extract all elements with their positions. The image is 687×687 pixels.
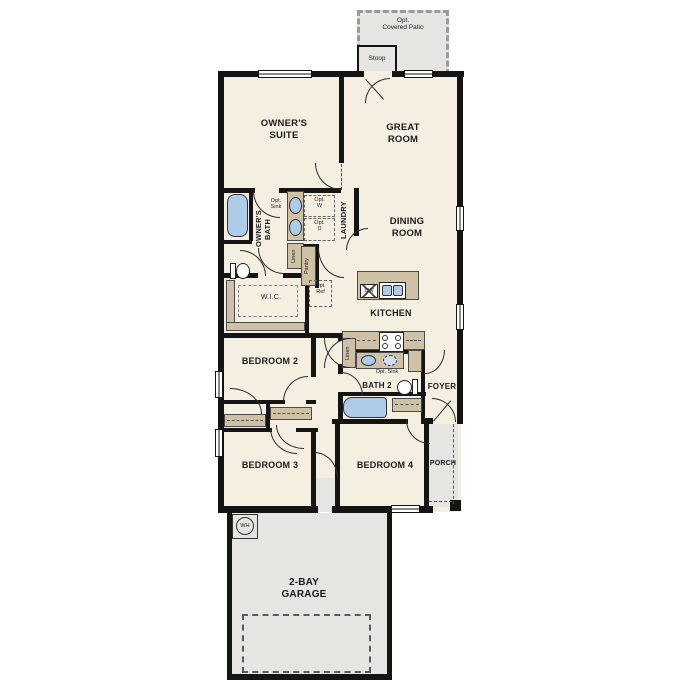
garage-label: 2-BAY GARAGE	[258, 577, 350, 601]
counter-side	[408, 350, 422, 372]
window	[391, 505, 420, 513]
island-sink-bowl-2	[393, 285, 403, 296]
wall	[227, 674, 392, 680]
sink-owners-1	[289, 197, 302, 214]
sink-owners-2	[289, 219, 302, 236]
window	[456, 206, 464, 231]
opt-dryer-label: Opt. D	[305, 220, 334, 233]
porch-edge-dash	[429, 501, 452, 502]
bathtub-owners	[227, 194, 248, 237]
wall	[332, 419, 408, 424]
wall	[387, 513, 392, 674]
toilet-bath2-bowl	[397, 380, 412, 395]
island-sink-bowl-1	[382, 285, 392, 296]
wic-shelf-bottom	[226, 322, 305, 331]
window	[404, 70, 433, 78]
kitchen-label: KITCHEN	[364, 308, 418, 319]
bathtub-bath2	[343, 397, 387, 418]
great-room-label: GREAT ROOM	[372, 122, 434, 145]
linen-owners-label: Linen	[291, 245, 297, 268]
garage-door-dash	[242, 614, 371, 673]
wic-label: W.I.C.	[250, 294, 292, 303]
sink-bath2	[361, 355, 376, 366]
closet-dash	[273, 413, 309, 414]
pantry-label: Pantry	[304, 249, 310, 283]
window	[258, 70, 312, 78]
foyer-label: FOYER	[424, 382, 460, 392]
stoop-label: Stoop	[358, 55, 396, 62]
dishwasher-label: DW	[360, 288, 378, 294]
opt-washer-label: Opt. W	[305, 197, 334, 210]
wall	[218, 333, 316, 338]
window	[215, 429, 223, 457]
window	[456, 304, 464, 330]
porch-label: PORCH	[426, 460, 460, 469]
laundry-label: LAUNDRY	[339, 193, 348, 247]
linen-hall-label: Linen	[345, 341, 351, 366]
range	[379, 332, 404, 352]
wall-dash	[341, 164, 342, 190]
wall	[354, 188, 359, 236]
closet-bath2-hall	[392, 398, 422, 412]
closet-dash	[227, 420, 263, 421]
covered-patio-label: Opt. Covered Patio	[361, 17, 445, 32]
window	[215, 371, 223, 398]
bedroom2-label: BEDROOM 2	[228, 356, 312, 367]
opt-sink-owners-label: Opt. Sink	[266, 198, 286, 211]
opt-sink-bath2-label: Opt. Sink	[370, 369, 404, 375]
water-heater-label: WH	[240, 523, 249, 529]
doorway-gap	[364, 71, 392, 77]
wall	[224, 240, 252, 244]
wall	[218, 428, 272, 432]
wall	[218, 506, 318, 513]
bath2-label: BATH 2	[358, 381, 396, 391]
dining-room-label: DINING ROOM	[376, 216, 438, 239]
wall	[457, 71, 463, 424]
bedroom3-label: BEDROOM 3	[228, 460, 312, 471]
opt-ref-label: Opt. Ref	[310, 283, 331, 296]
toilet-bath2-tank	[412, 379, 418, 395]
water-heater-circle: WH	[236, 517, 254, 535]
bedroom4-label: BEDROOM 4	[342, 460, 428, 471]
floor-plan: Opt. Covered Patio Stoop	[0, 0, 687, 687]
opt-sink-bath2-shape	[383, 355, 397, 366]
closet-dash	[395, 404, 419, 405]
wall	[249, 188, 253, 241]
owners-suite-label: OWNER'S SUITE	[238, 118, 330, 141]
wall	[339, 75, 344, 163]
counter-dash	[406, 340, 421, 341]
